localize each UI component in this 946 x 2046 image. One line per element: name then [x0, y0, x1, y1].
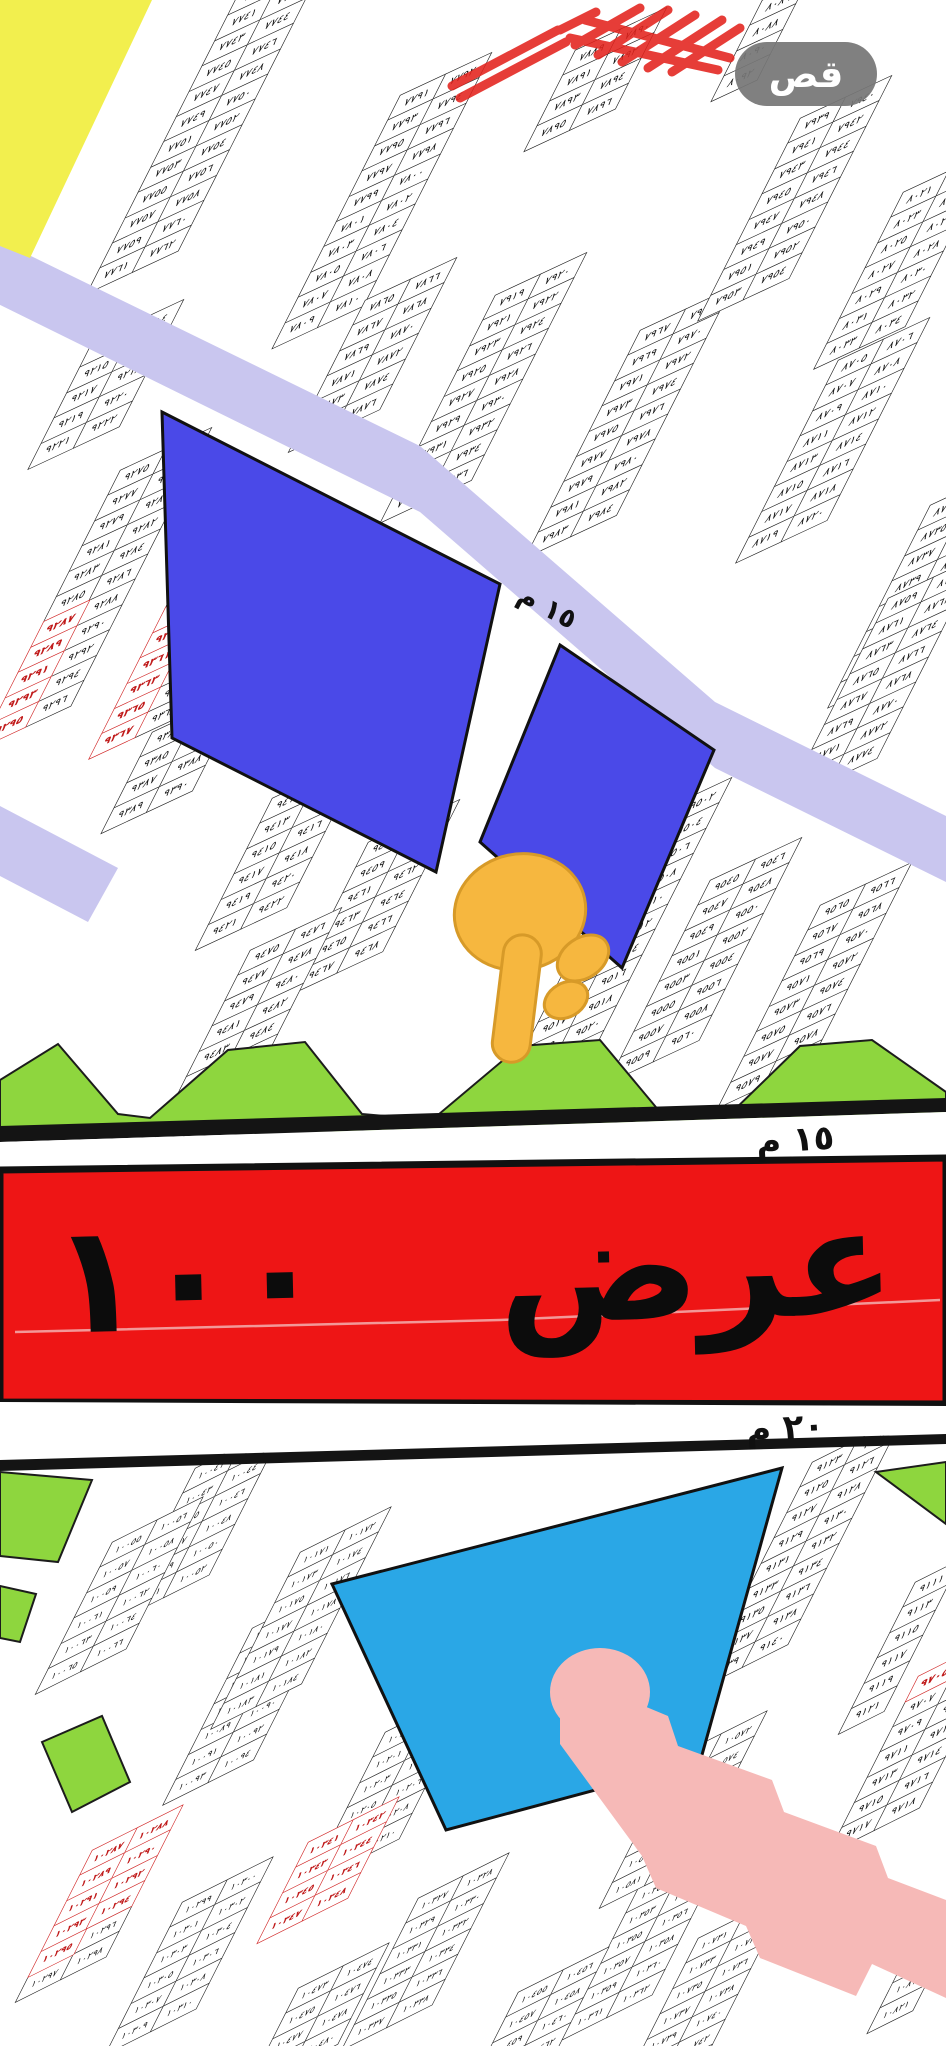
green-plot-left-upper — [0, 1472, 92, 1562]
plot-block: ٨٧٥٩٨٧٦١٨٧٦٣٨٧٦٥٨٧٦٧٨٧٦٩٨٧٧١٨٧٧٣٨٧٦٠٨٧٦٢… — [785, 555, 946, 802]
cadastral-map-screenshot: ٧٧٣٩٧٧٤١٧٧٤٣٧٧٤٥٧٧٤٧٧٧٤٩٧٧٥١٧٧٥٣٧٧٥٥٧٧٥٧… — [0, 0, 946, 2046]
green-plot-right-triangle — [876, 1462, 946, 1524]
plot-block: ١٠٣٢٧١٠٣٢٩١٠٣٣١١٠٣٣٣١٠٣٣٥١٠٣٣٧١٠٣٢٨١٠٣٣٠… — [341, 1852, 511, 2046]
lavender-street-wedge — [0, 806, 118, 922]
avenue-width-banner-text: م عرض ١٠٠ م — [0, 1169, 946, 1375]
plot-block: ٩٢١٣٩٢١٥٩٢١٧٩٢١٩٩٢٢١٩٢١٤٩٢١٦٩٢١٨٩٢٢٠٩٢٢٢ — [27, 299, 184, 470]
street-width-label-15m: ١٥ م — [755, 1118, 836, 1163]
pink-lane-start-blob — [550, 1648, 650, 1736]
plot-block: ٧٧٣٩٧٧٤١٧٧٤٣٧٧٤٥٧٧٤٧٧٧٤٩٧٧٥١٧٧٥٣٧٧٥٥٧٧٥٧… — [86, 0, 333, 295]
plot-block: ٧٩٦٧٧٩٦٩٧٩٧١٧٩٧٣٧٩٧٥٧٩٧٧٧٩٧٩٧٩٨١٧٩٨٣٧٩٦٨… — [524, 287, 733, 559]
plot-block: ٩١٢٣٩١٢٥٩١٢٧٩١٢٩٩١٣١٩١٣٣٩١٣٥٩١٣٧٩١٣٩٩١٢٤… — [696, 1416, 904, 1691]
plot-block: ١٠٣٤١١٠٣٤٣١٠٣٤٥١٠٣٤٧١٠٣٤٢١٠٣٤٤١٠٣٤٦١٠٣٤٨ — [256, 1796, 400, 1945]
street-width-label-20m: ٢٠ م — [745, 1406, 826, 1451]
plot-block: ٧٨٨٩٧٨٩١٧٨٩٣٧٨٩٥٧٨٩٠٧٨٩٢٧٨٩٤٧٨٩٦ — [523, 7, 668, 153]
street-width-label-15m-diagonal: ١٥ م — [512, 579, 581, 636]
plot-block: ١٠١٧١١٠١٧٣١٠١٧٥١٠١٧٧١٠١٧٩١٠١٨١١٠١٨٣١٠١٧٢… — [210, 1506, 392, 1730]
plot-block: ١٠٠٥٥١٠٠٥٧١٠٠٥٩١٠٠٦١١٠٠٦٣١٠٠٦٥١٠٠٥٦١٠٠٥٨… — [35, 1496, 205, 1695]
green-plot-left-lower — [42, 1716, 130, 1812]
crop-button[interactable]: قص — [735, 42, 877, 106]
green-plot-left-small — [0, 1586, 36, 1642]
plot-block: ٩٤٧٥٩٤٧٧٩٤٧٩٩٤٨١٩٤٨٣٩٤٨٥٩٤٨٧٩٤٨٩٩٤٧٦٩٤٧٨… — [147, 907, 343, 1154]
plot-block: ١٠٨١٥١٠٨١٧١٠٨١٩١٠٨٢١ — [866, 1909, 946, 2035]
